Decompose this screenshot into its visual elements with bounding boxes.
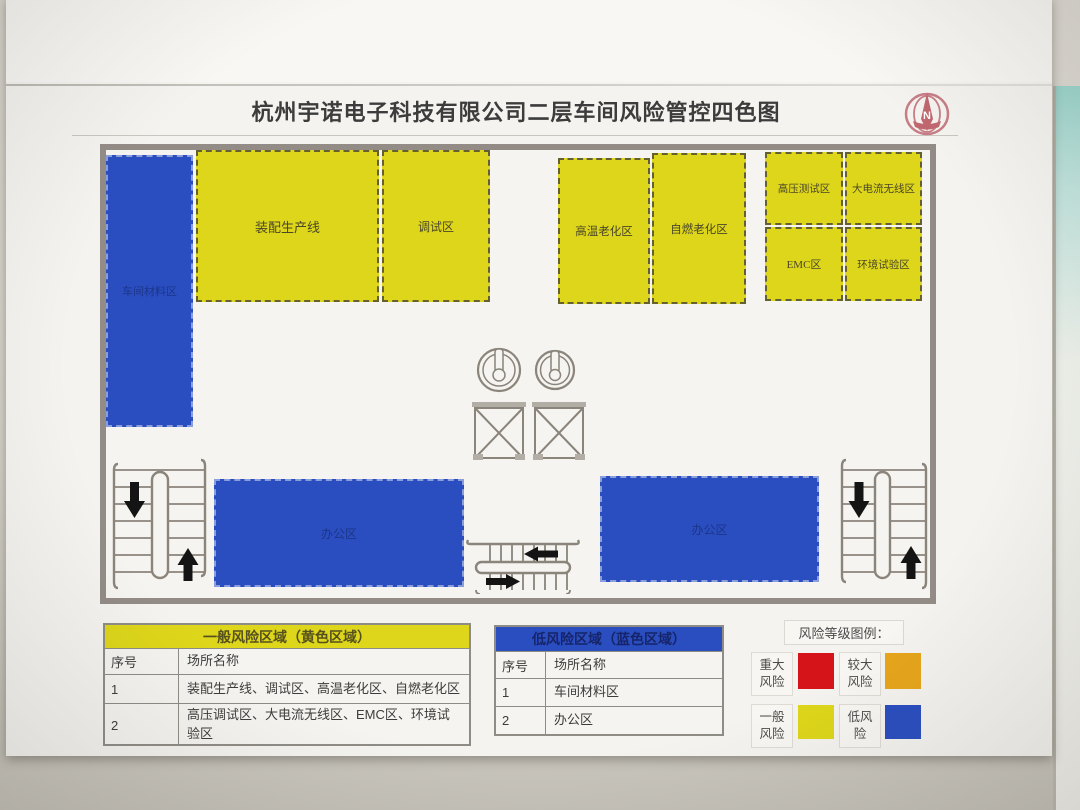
row-name: 装配生产线、调试区、高温老化区、自燃老化区: [179, 675, 469, 703]
blue-risk-table: 低风险区域（蓝色区域） 序号 场所名称 1 车间材料区 2 办公区: [494, 625, 724, 736]
company-logo-icon: N: [903, 91, 951, 137]
table-row: 2 办公区: [496, 707, 722, 734]
washbasin-icon: [474, 344, 586, 396]
zone-label: 大电流无线区: [852, 181, 915, 196]
row-no: 1: [496, 679, 546, 706]
zone-high-current-wireless: 大电流无线区: [845, 152, 922, 225]
zone-label: 办公区: [321, 525, 357, 542]
zone-office-left: 办公区: [214, 479, 464, 587]
legend-label-major: 重大风险: [751, 652, 793, 696]
blue-table-colheader: 序号 场所名称: [496, 652, 722, 679]
staircase-center: [466, 538, 580, 594]
stairs-arrow-right: [486, 574, 520, 589]
row-no: 2: [496, 707, 546, 734]
zone-label: 装配生产线: [255, 217, 320, 236]
zone-label: EMC区: [787, 256, 822, 272]
zone-debug-area: 调试区: [382, 150, 490, 302]
legend-title: 风险等级图例：: [784, 620, 904, 645]
row-name: 办公区: [546, 707, 722, 734]
zone-label: 环境试验区: [857, 257, 910, 272]
yellow-risk-table: 一般风险区域（黄色区域） 序号 场所名称 1 装配生产线、调试区、高温老化区、自…: [103, 623, 471, 746]
legend-swatch-high: [885, 653, 921, 689]
legend-swatch-general: [798, 705, 834, 739]
row-no: 2: [105, 704, 179, 746]
stairs-up-arrow: [901, 546, 922, 579]
row-name: 车间材料区: [546, 679, 722, 706]
zone-office-right: 办公区: [600, 476, 819, 582]
zone-label: 高压测试区: [778, 181, 831, 196]
staircase-left: [108, 452, 210, 592]
row-no: 1: [105, 675, 179, 703]
stairs-up-arrow: [178, 548, 199, 581]
stairs-arrow-left: [524, 547, 558, 562]
table-row: 2 高压调试区、大电流无线区、EMC区、环境试验区: [105, 704, 469, 746]
zone-high-voltage-test: 高压测试区: [765, 152, 843, 225]
zone-label: 自燃老化区: [670, 221, 728, 237]
legend-label-low: 低风险: [839, 704, 881, 748]
zone-environment-test: 环境试验区: [845, 227, 922, 301]
yellow-table-colheader: 序号 场所名称: [105, 649, 469, 675]
zone-label: 办公区: [691, 521, 727, 538]
title-underline: [72, 135, 958, 136]
col-no: 序号: [105, 649, 179, 674]
zone-assembly-line: 装配生产线: [196, 150, 379, 302]
zone-high-temp-aging: 高温老化区: [558, 158, 650, 304]
adjacent-sheet-edge: [1053, 86, 1080, 810]
zone-label: 高温老化区: [575, 223, 633, 239]
paper-crease: [6, 84, 1052, 86]
zone-label: 车间材料区: [122, 283, 177, 299]
table-row: 1 车间材料区: [496, 679, 722, 707]
legend-swatch-major: [798, 653, 834, 689]
floor-plan: 车间材料区 装配生产线 调试区 高温老化区 自燃老化区 高压测试区 大电流无线区: [100, 144, 936, 604]
poster-paper: 杭州宇诺电子科技有限公司二层车间风险管控四色图 N 车间材料区 装配生产线 调试…: [6, 0, 1052, 756]
svg-text:N: N: [923, 110, 931, 122]
elevator-icon: [472, 402, 588, 464]
col-no: 序号: [496, 652, 546, 678]
row-name: 高压调试区、大电流无线区、EMC区、环境试验区: [179, 704, 469, 746]
zone-workshop-material: 车间材料区: [106, 155, 193, 427]
zone-emc: EMC区: [765, 227, 843, 301]
yellow-table-header: 一般风险区域（黄色区域）: [105, 625, 469, 649]
zone-self-ignite-aging: 自燃老化区: [652, 153, 746, 304]
blue-table-header: 低风险区域（蓝色区域）: [496, 627, 722, 652]
legend-swatch-low: [885, 705, 921, 739]
poster-title: 杭州宇诺电子科技有限公司二层车间风险管控四色图: [146, 95, 886, 127]
staircase-right: [838, 452, 930, 592]
table-row: 1 装配生产线、调试区、高温老化区、自燃老化区: [105, 675, 469, 704]
risk-level-legend: 风险等级图例： 重大风险 较大风险 一般风险 低风险: [746, 614, 978, 750]
col-name: 场所名称: [546, 652, 722, 678]
zone-label: 调试区: [418, 218, 454, 235]
photo-of-poster: 杭州宇诺电子科技有限公司二层车间风险管控四色图 N 车间材料区 装配生产线 调试…: [0, 0, 1080, 810]
paper-top-fold: [6, 0, 1052, 82]
legend-label-general: 一般风险: [751, 704, 793, 748]
col-name: 场所名称: [179, 649, 469, 674]
legend-label-high: 较大风险: [839, 652, 881, 696]
